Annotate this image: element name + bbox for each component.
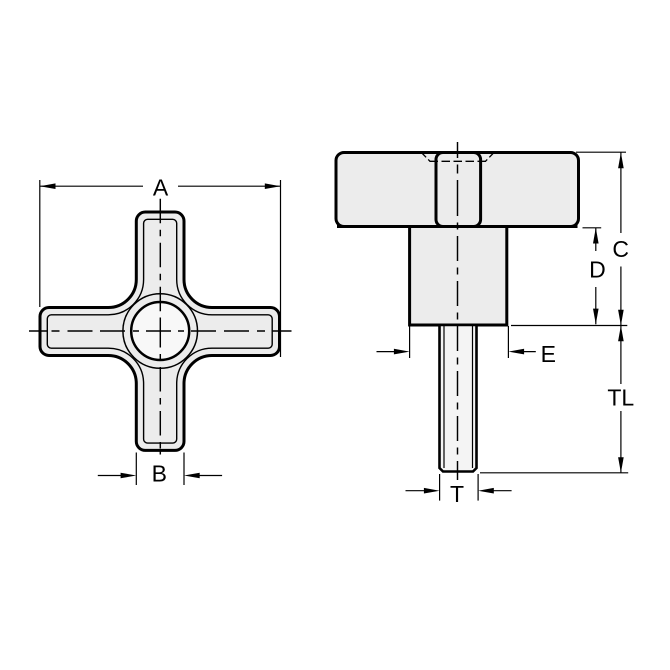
svg-text:A: A xyxy=(153,174,169,200)
svg-text:B: B xyxy=(152,461,167,487)
svg-text:T: T xyxy=(450,481,464,507)
svg-text:D: D xyxy=(589,256,606,282)
svg-text:C: C xyxy=(612,236,629,262)
svg-text:TL: TL xyxy=(607,385,634,411)
svg-text:E: E xyxy=(541,341,556,367)
